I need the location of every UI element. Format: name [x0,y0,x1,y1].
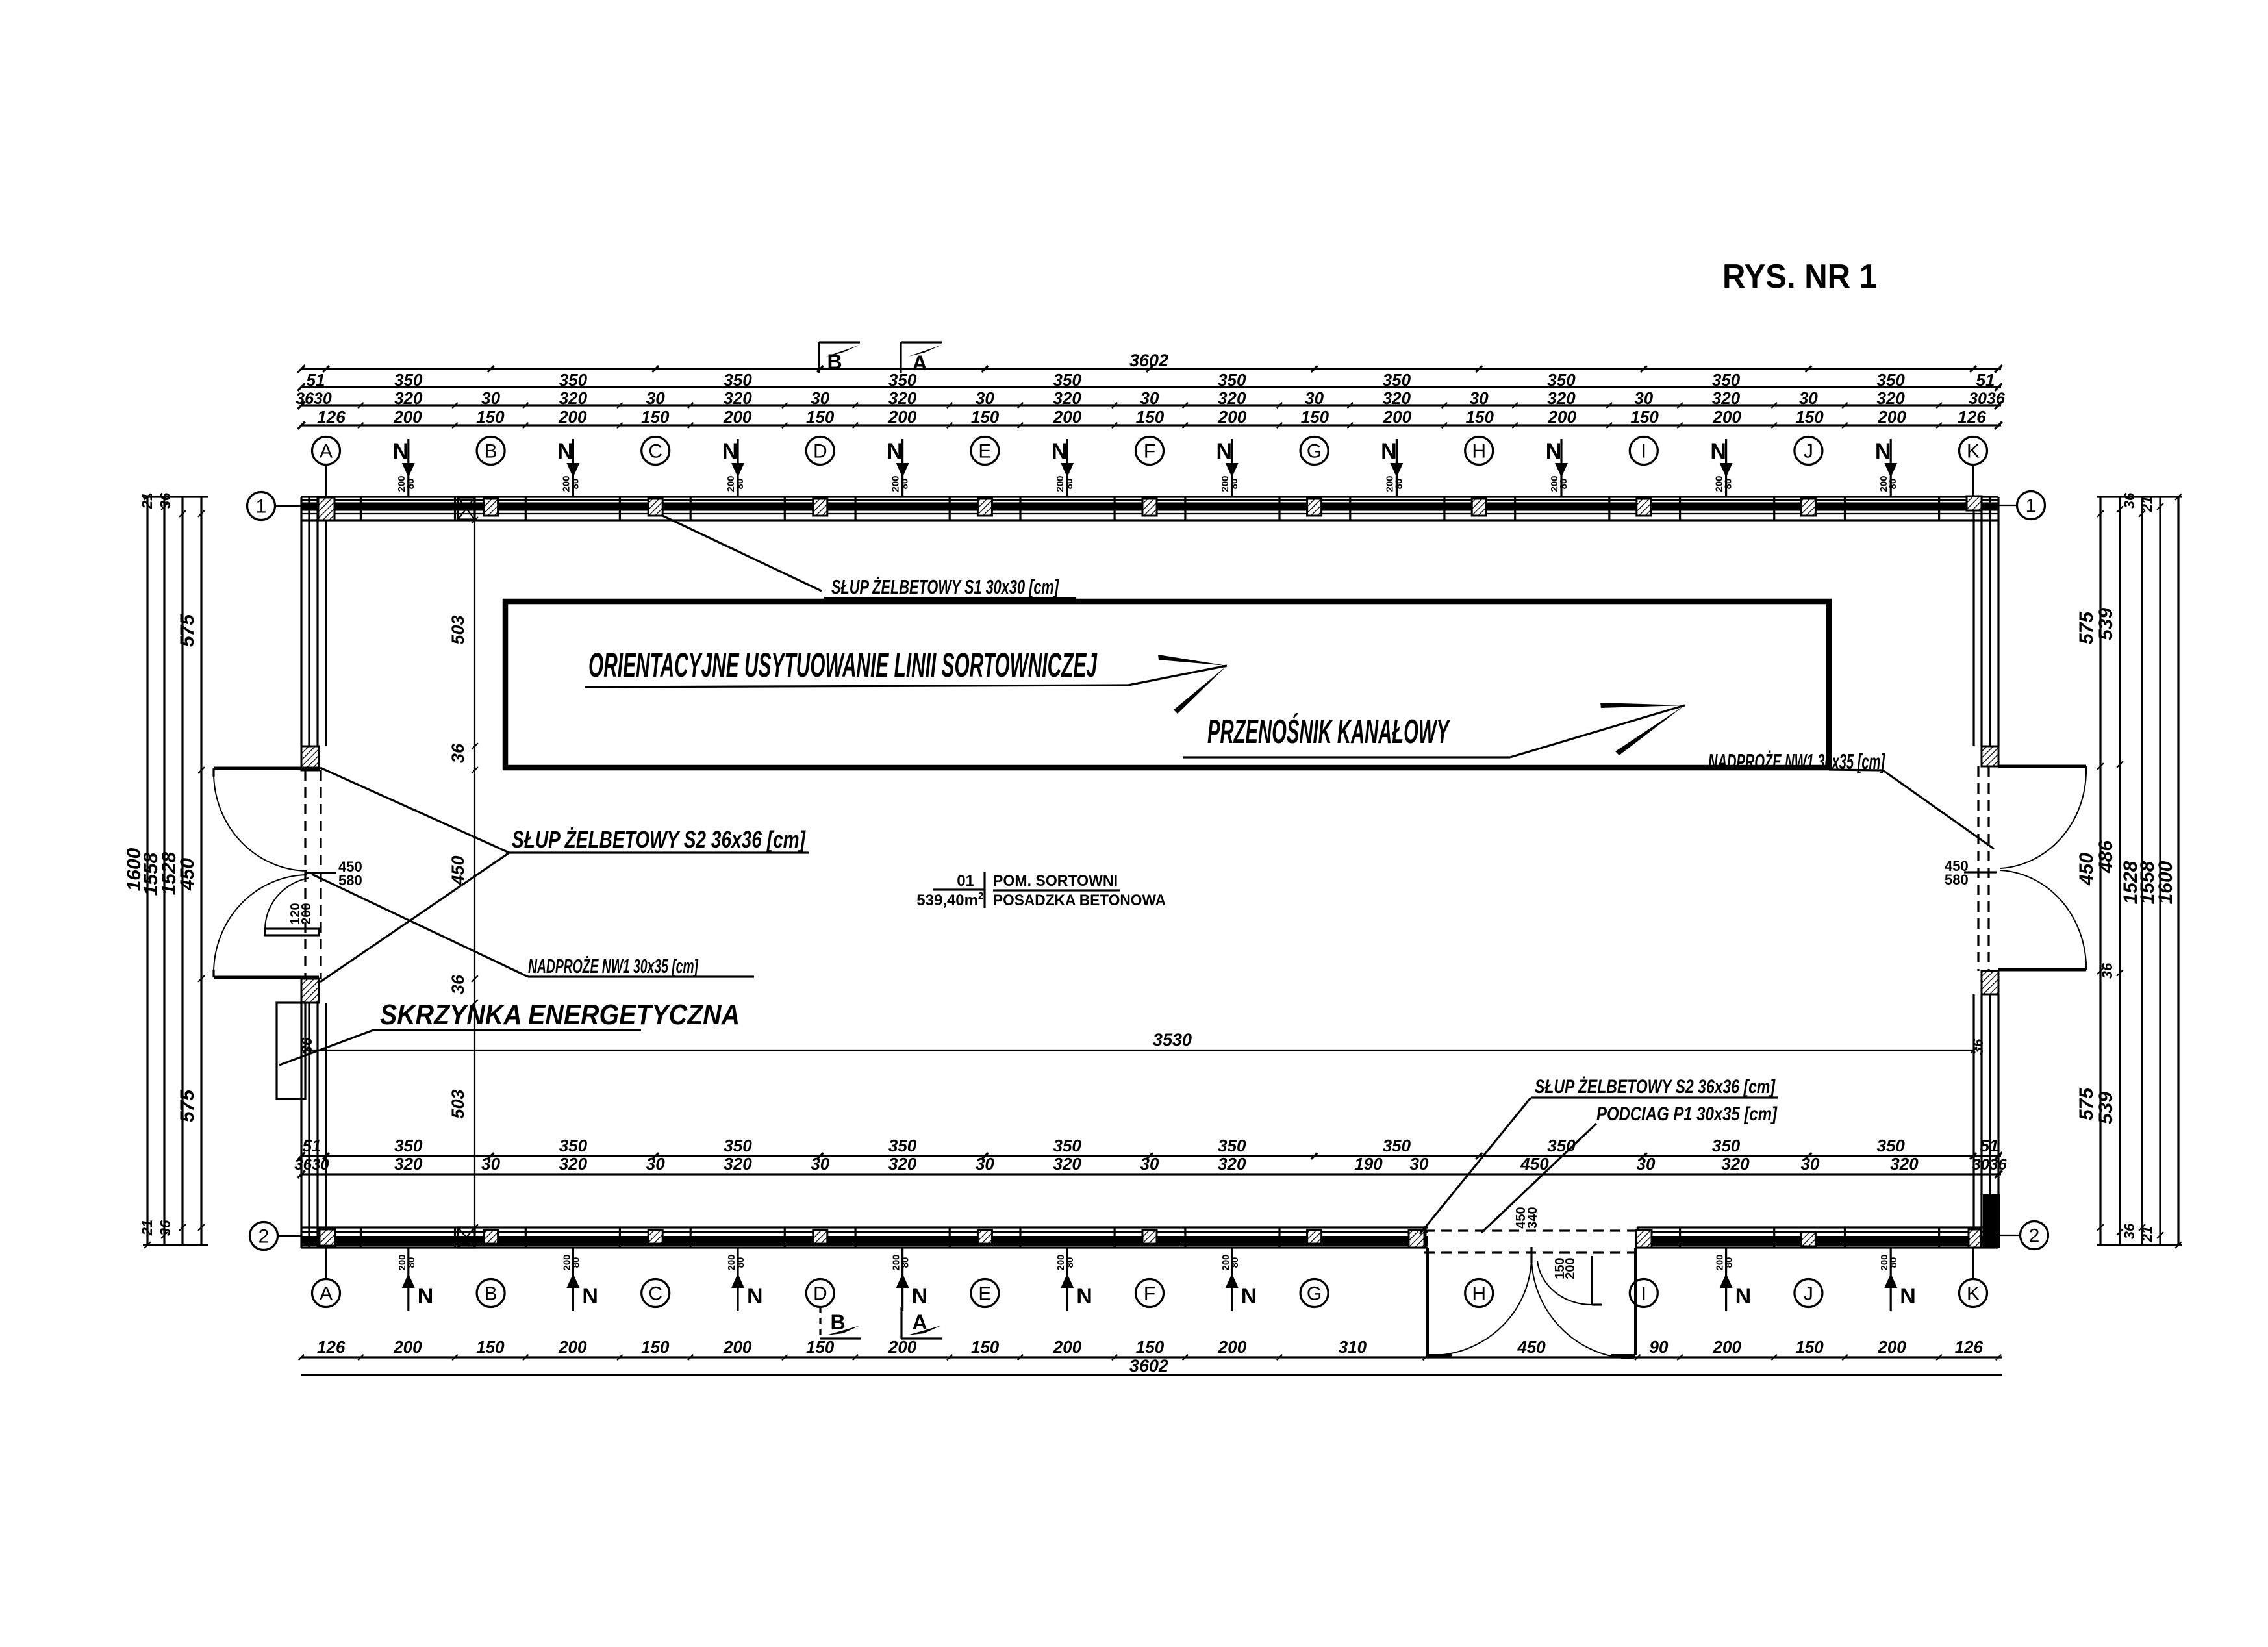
svg-text:36: 36 [448,743,468,763]
svg-text:320: 320 [394,1154,423,1174]
svg-text:150: 150 [1631,407,1659,427]
svg-text:K: K [1967,1283,1980,1305]
svg-text:539,40m: 539,40m [916,892,978,909]
svg-text:ORIENTACYJNE USYTUOWANIE LINII: ORIENTACYJNE USYTUOWANIE LINII SORTOWNIC… [588,646,1098,685]
svg-text:30: 30 [1305,388,1324,408]
svg-text:320: 320 [1890,1154,1919,1174]
svg-text:200: 200 [558,407,587,427]
svg-text:320: 320 [1721,1154,1750,1174]
svg-text:30: 30 [811,388,829,408]
svg-text:36: 36 [299,1037,315,1053]
svg-text:80: 80 [1064,479,1075,490]
svg-text:200: 200 [1053,407,1082,427]
svg-text:21: 21 [139,1220,155,1236]
svg-text:350: 350 [1712,1136,1741,1155]
svg-text:320: 320 [1712,388,1741,408]
svg-text:150: 150 [641,407,670,427]
svg-text:580: 580 [338,872,362,888]
svg-text:150: 150 [1795,407,1824,427]
svg-text:PODCIAG P1 30x35 [cm]: PODCIAG P1 30x35 [cm] [1596,1103,1778,1125]
svg-text:80: 80 [570,479,581,490]
svg-text:B: B [485,1283,498,1305]
svg-text:K: K [1967,441,1980,462]
svg-text:503: 503 [448,1089,468,1118]
svg-text:150: 150 [971,1337,1000,1357]
svg-text:200: 200 [1218,407,1247,427]
svg-text:I: I [1641,1283,1646,1305]
svg-text:80: 80 [570,1257,581,1268]
svg-text:30: 30 [1470,388,1489,408]
svg-text:N: N [418,1284,434,1309]
svg-text:80: 80 [1888,1257,1899,1268]
svg-text:450: 450 [2076,853,2097,886]
svg-text:51: 51 [1980,1136,1999,1155]
svg-text:350: 350 [1053,1136,1082,1155]
svg-text:30: 30 [1140,388,1159,408]
svg-text:2: 2 [2029,1226,2040,1247]
svg-text:N: N [887,439,903,464]
svg-text:580: 580 [1945,872,1969,888]
svg-text:NADPROŻE NW1 30x35 [cm]: NADPROŻE NW1 30x35 [cm] [528,955,699,977]
svg-text:200: 200 [723,1337,752,1357]
svg-text:N: N [582,1284,598,1309]
svg-text:320: 320 [888,1154,917,1174]
svg-text:350: 350 [1547,370,1576,390]
svg-text:150: 150 [1795,1337,1824,1357]
svg-text:350: 350 [888,1136,917,1155]
svg-text:450: 450 [448,855,468,885]
svg-text:350: 350 [724,370,752,390]
svg-text:N: N [1076,1284,1092,1309]
svg-text:320: 320 [394,388,423,408]
svg-text:G: G [1307,441,1322,462]
svg-text:200: 200 [1053,1337,1082,1357]
svg-text:320: 320 [559,1154,588,1174]
svg-text:80: 80 [1558,479,1569,490]
svg-text:190: 190 [1354,1154,1383,1174]
svg-text:350: 350 [1712,370,1741,390]
svg-text:200: 200 [1563,1257,1578,1279]
svg-text:30: 30 [1799,388,1818,408]
svg-text:80: 80 [1393,479,1404,490]
svg-text:30: 30 [1637,1154,1656,1174]
svg-text:80: 80 [1229,479,1240,490]
svg-text:150: 150 [1301,407,1329,427]
svg-text:350: 350 [559,370,588,390]
svg-text:200: 200 [1548,407,1577,427]
svg-text:21: 21 [2139,496,2155,512]
svg-text:SKRZYNKA ENERGETYCZNA: SKRZYNKA ENERGETYCZNA [380,999,740,1031]
svg-text:N: N [1381,439,1397,464]
svg-text:200: 200 [888,407,917,427]
svg-text:C: C [648,1283,662,1305]
svg-text:1: 1 [256,496,267,518]
svg-text:N: N [1546,439,1562,464]
svg-text:320: 320 [559,388,588,408]
svg-text:80: 80 [900,479,911,490]
svg-text:30: 30 [646,388,665,408]
svg-text:320: 320 [1383,388,1411,408]
svg-text:539: 539 [2095,1092,2117,1124]
svg-text:126: 126 [317,407,346,427]
svg-text:A: A [320,441,333,462]
svg-text:126: 126 [1958,407,1986,427]
svg-text:200: 200 [1877,407,1906,427]
svg-text:150: 150 [806,407,835,427]
svg-text:B: B [827,350,842,373]
svg-text:80: 80 [735,1257,746,1268]
svg-text:126: 126 [1955,1337,1984,1357]
svg-text:150: 150 [641,1337,670,1357]
svg-text:J: J [1804,1283,1813,1305]
svg-text:575: 575 [2076,1087,2097,1120]
svg-text:150: 150 [1466,407,1494,427]
svg-text:450: 450 [1517,1337,1546,1357]
svg-text:503: 503 [448,615,468,644]
svg-text:575: 575 [2076,611,2097,644]
svg-text:320: 320 [724,388,752,408]
svg-text:340: 340 [1526,1207,1540,1228]
svg-text:320: 320 [1053,1154,1082,1174]
svg-text:80: 80 [735,479,746,490]
svg-text:350: 350 [394,370,423,390]
svg-text:150: 150 [476,407,505,427]
svg-text:36: 36 [2121,492,2137,509]
svg-text:350: 350 [1547,1136,1576,1155]
svg-text:200: 200 [1218,1337,1247,1357]
svg-text:N: N [747,1284,763,1309]
svg-text:150: 150 [971,407,1000,427]
svg-text:450: 450 [177,858,198,891]
svg-text:575: 575 [177,614,198,647]
svg-text:320: 320 [1547,388,1576,408]
svg-text:36: 36 [157,1220,173,1236]
svg-text:F: F [1144,1283,1155,1305]
svg-text:350: 350 [1383,370,1411,390]
svg-text:350: 350 [1877,370,1906,390]
svg-text:D: D [813,441,827,462]
svg-text:80: 80 [1724,1257,1735,1268]
svg-text:350: 350 [559,1136,588,1155]
svg-text:126: 126 [317,1337,346,1357]
svg-text:1600: 1600 [2155,861,2176,904]
svg-text:350: 350 [724,1136,752,1155]
svg-text:486: 486 [2095,840,2117,874]
svg-text:150: 150 [476,1337,505,1357]
svg-text:450: 450 [1520,1154,1549,1174]
svg-text:36: 36 [448,974,468,994]
svg-text:N: N [1241,1284,1257,1309]
svg-text:320: 320 [1218,1154,1246,1174]
svg-text:N: N [393,439,409,464]
svg-text:N: N [1875,439,1891,464]
svg-text:30: 30 [1634,388,1653,408]
svg-text:320: 320 [1218,388,1246,408]
svg-text:F: F [1144,441,1155,462]
svg-text:30: 30 [976,388,994,408]
svg-text:B: B [830,1311,845,1334]
svg-text:200: 200 [299,903,314,924]
svg-text:90: 90 [1650,1337,1669,1357]
svg-text:320: 320 [724,1154,752,1174]
svg-text:30: 30 [481,388,500,408]
svg-text:200: 200 [393,407,422,427]
svg-text:80: 80 [1229,1257,1241,1268]
svg-text:2: 2 [978,890,983,901]
svg-text:G: G [1307,1283,1322,1305]
svg-text:SŁUP ŻELBETOWY S2 36x36 [cm]: SŁUP ŻELBETOWY S2 36x36 [cm] [512,826,806,853]
svg-text:A: A [320,1283,333,1305]
svg-text:N: N [1735,1284,1752,1309]
svg-text:3602: 3602 [1129,1356,1168,1376]
svg-text:200: 200 [558,1337,587,1357]
svg-text:N: N [722,439,738,464]
svg-text:21: 21 [2139,1226,2155,1242]
svg-text:A: A [912,351,927,375]
svg-text:SŁUP ŻELBETOWY S1 30x30 [cm]: SŁUP ŻELBETOWY S1 30x30 [cm] [831,575,1059,598]
svg-text:I: I [1641,441,1646,462]
svg-text:200: 200 [1383,407,1412,427]
svg-text:E: E [978,1283,991,1305]
svg-text:51: 51 [1976,370,1995,390]
svg-text:RYS. NR 1: RYS. NR 1 [1722,258,1877,295]
svg-text:150: 150 [1136,407,1165,427]
svg-text:51: 51 [307,370,325,390]
svg-text:350: 350 [1053,370,1082,390]
svg-text:1: 1 [2026,496,2037,517]
svg-text:21: 21 [139,493,155,509]
svg-text:36: 36 [2099,962,2115,979]
svg-text:N: N [1216,439,1233,464]
svg-text:POSADZKA BETONOWA: POSADZKA BETONOWA [993,892,1166,909]
svg-text:N: N [1900,1284,1916,1309]
svg-text:36: 36 [1970,1038,1986,1055]
svg-text:J: J [1804,441,1813,462]
svg-text:310: 310 [1339,1337,1367,1357]
svg-text:POM. SORTOWNI: POM. SORTOWNI [993,872,1118,890]
svg-text:36: 36 [2121,1223,2137,1239]
svg-text:80: 80 [406,1257,417,1268]
svg-text:SŁUP ŻELBETOWY S2 36x36 [cm]: SŁUP ŻELBETOWY S2 36x36 [cm] [1535,1076,1776,1098]
svg-text:80: 80 [405,479,416,490]
svg-text:80: 80 [1723,479,1734,490]
svg-text:N: N [912,1284,928,1309]
svg-text:350: 350 [1218,1136,1246,1155]
svg-text:B: B [485,441,498,462]
svg-text:N: N [1052,439,1068,464]
svg-text:200: 200 [1713,1337,1742,1357]
svg-text:200: 200 [393,1337,422,1357]
svg-text:200: 200 [723,407,752,427]
svg-text:2: 2 [258,1226,270,1248]
svg-text:3530: 3530 [1153,1030,1192,1050]
svg-text:150: 150 [1136,1337,1165,1357]
svg-text:30: 30 [1410,1154,1429,1174]
svg-text:01: 01 [957,872,974,890]
svg-text:3602: 3602 [1129,351,1168,370]
svg-text:80: 80 [900,1257,911,1268]
svg-text:H: H [1472,441,1486,462]
svg-text:C: C [648,441,662,462]
svg-text:575: 575 [177,1089,198,1122]
svg-text:A: A [912,1311,927,1334]
svg-text:36: 36 [157,492,173,509]
svg-text:539: 539 [2095,608,2117,640]
svg-text:350: 350 [1218,370,1246,390]
svg-text:N: N [557,439,573,464]
svg-text:PRZENOŚNIK KANAŁOWY: PRZENOŚNIK KANAŁOWY [1207,713,1450,751]
svg-text:320: 320 [1053,388,1082,408]
svg-text:350: 350 [394,1136,423,1155]
svg-text:200: 200 [1877,1337,1906,1357]
svg-text:H: H [1472,1283,1486,1305]
svg-text:350: 350 [1877,1136,1906,1155]
svg-text:N: N [1710,439,1726,464]
svg-text:320: 320 [1877,388,1906,408]
svg-text:E: E [978,441,991,462]
svg-text:320: 320 [888,388,917,408]
svg-text:D: D [813,1283,827,1305]
svg-text:350: 350 [1383,1136,1411,1155]
svg-text:80: 80 [1887,479,1898,490]
svg-text:30: 30 [1801,1154,1820,1174]
svg-text:200: 200 [888,1337,917,1357]
svg-text:200: 200 [1713,407,1742,427]
svg-text:80: 80 [1065,1257,1076,1268]
svg-text:150: 150 [806,1337,835,1357]
